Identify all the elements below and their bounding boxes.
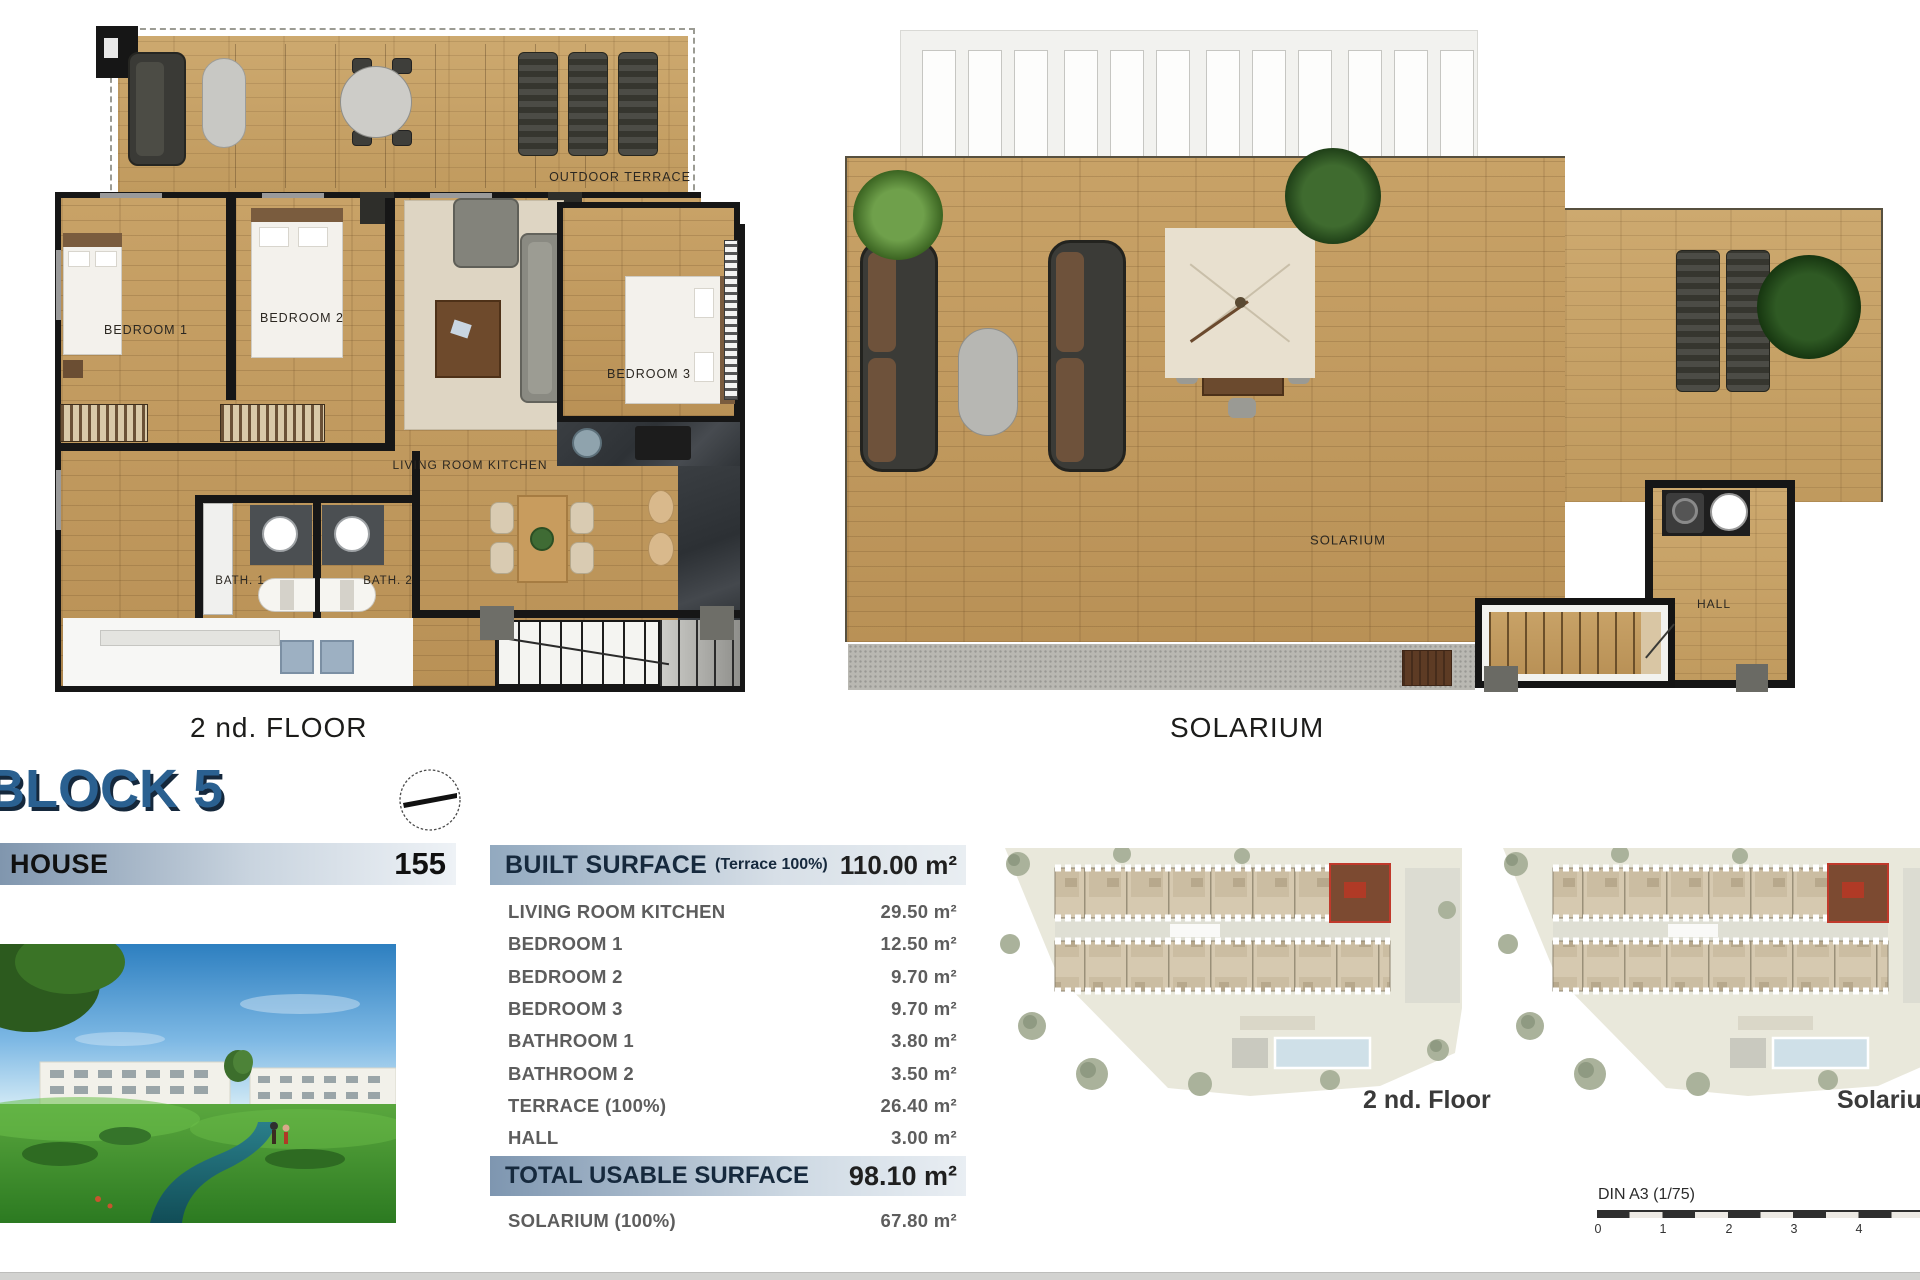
- table-row: TERRACE (100%)26.40 m²: [490, 1090, 966, 1122]
- landing-pad: [1484, 666, 1518, 692]
- row-value: 67.80 m²: [881, 1210, 957, 1232]
- room-label-bedroom-3: BEDROOM 3: [607, 367, 691, 381]
- scale-label: DIN A3 (1/75): [1598, 1186, 1695, 1204]
- table-row: LIVING ROOM KITCHEN29.50 m²: [490, 896, 966, 928]
- wall: [1645, 480, 1653, 610]
- table-row: HALL3.00 m²: [490, 1122, 966, 1154]
- page-bottom-edge: [0, 1272, 1920, 1280]
- landing-pad: [1736, 664, 1768, 692]
- deck-table: [958, 328, 1018, 436]
- row-label: TERRACE (100%): [508, 1095, 666, 1117]
- row-label: BEDROOM 2: [508, 966, 623, 988]
- north-compass-icon: [398, 768, 462, 832]
- siteplan-caption-solarium: Solarium: [1837, 1086, 1920, 1115]
- row-value: 29.50 m²: [881, 901, 957, 923]
- siteplan-caption-2nd-floor: 2 nd. Floor: [1363, 1086, 1491, 1115]
- row-label: BEDROOM 3: [508, 998, 623, 1020]
- table-row: BATHROOM 13.80 m²: [490, 1025, 966, 1057]
- sofa-cushions: [1056, 252, 1084, 352]
- house-number: 155: [394, 846, 456, 882]
- wall: [1787, 480, 1795, 688]
- house-label: HOUSE: [0, 849, 109, 880]
- caption-solarium: SOLARIUM: [1170, 712, 1324, 744]
- sofa-cushions: [868, 358, 896, 462]
- total-value: 98.10 m²: [849, 1161, 957, 1192]
- wall: [1645, 480, 1795, 488]
- sofa-cushions: [868, 252, 896, 352]
- tree: [1757, 255, 1861, 359]
- table-row: BEDROOM 39.70 m²: [490, 993, 966, 1025]
- row-value: 3.50 m²: [891, 1063, 957, 1085]
- washer-door: [1672, 498, 1698, 524]
- total-usable-bar: TOTAL USABLE SURFACE 98.10 m²: [490, 1156, 966, 1196]
- row-label: BEDROOM 1: [508, 933, 623, 955]
- doormat: [1402, 650, 1452, 686]
- row-label: LIVING ROOM KITCHEN: [508, 901, 725, 923]
- property-photo: [0, 944, 396, 1223]
- row-value: 3.00 m²: [891, 1127, 957, 1149]
- house-number-bar: HOUSE 155: [0, 843, 456, 885]
- built-surface-label: BUILT SURFACE: [505, 851, 707, 880]
- umbrella-hub: [1235, 297, 1246, 308]
- stairs-treads: [1489, 612, 1641, 674]
- siteplan-solarium: [1498, 848, 1920, 1098]
- row-value: 3.80 m²: [891, 1030, 957, 1052]
- spacer: [490, 885, 966, 896]
- table-row: BEDROOM 29.70 m²: [490, 961, 966, 993]
- brochure-page: OUTDOOR TERRACE BEDROOM 1 BEDROOM 2: [0, 0, 1920, 1280]
- scale-tick: 4: [1853, 1222, 1865, 1236]
- room-label-hall: HALL: [1697, 597, 1731, 611]
- scale-ruler: [1597, 1210, 1920, 1218]
- solarium-row: SOLARIUM (100%) 67.80 m²: [490, 1204, 966, 1236]
- surface-table: BUILT SURFACE (Terrace 100%) 110.00 m² L…: [490, 845, 966, 1237]
- scale-tick: 0: [1592, 1222, 1604, 1236]
- table-row: BATHROOM 23.50 m²: [490, 1057, 966, 1089]
- plant: [853, 170, 943, 260]
- sofa-cushions: [1056, 358, 1084, 462]
- row-label: SOLARIUM (100%): [508, 1210, 676, 1232]
- room-label-solarium: SOLARIUM: [1310, 533, 1386, 548]
- caption-2nd-floor: 2 nd. FLOOR: [190, 712, 368, 744]
- concrete-walk: [848, 644, 1475, 690]
- built-surface-note: (Terrace 100%): [715, 856, 828, 874]
- deck-right-wing: [1565, 208, 1883, 502]
- row-value: 26.40 m²: [881, 1095, 957, 1117]
- row-value: 12.50 m²: [881, 933, 957, 955]
- deck-chair: [1228, 398, 1256, 418]
- row-label: HALL: [508, 1127, 559, 1149]
- scale-tick: 3: [1788, 1222, 1800, 1236]
- built-surface-header: BUILT SURFACE (Terrace 100%) 110.00 m²: [490, 845, 966, 885]
- row-value: 9.70 m²: [891, 966, 957, 988]
- row-label: BATHROOM 1: [508, 1030, 634, 1052]
- tree: [1285, 148, 1381, 244]
- scale-tick: 2: [1723, 1222, 1735, 1236]
- built-surface-value: 110.00 m²: [840, 850, 957, 881]
- table-row: BEDROOM 112.50 m²: [490, 928, 966, 960]
- sink: [1710, 493, 1748, 531]
- block-title: BLOCK 5: [0, 758, 223, 820]
- row-value: 9.70 m²: [891, 998, 957, 1020]
- sun-lounger: [1676, 250, 1720, 392]
- total-label: TOTAL USABLE SURFACE: [505, 1162, 809, 1190]
- row-label: BATHROOM 2: [508, 1063, 634, 1085]
- scale-tick: 1: [1657, 1222, 1669, 1236]
- siteplan-2nd-floor: [1000, 848, 1462, 1098]
